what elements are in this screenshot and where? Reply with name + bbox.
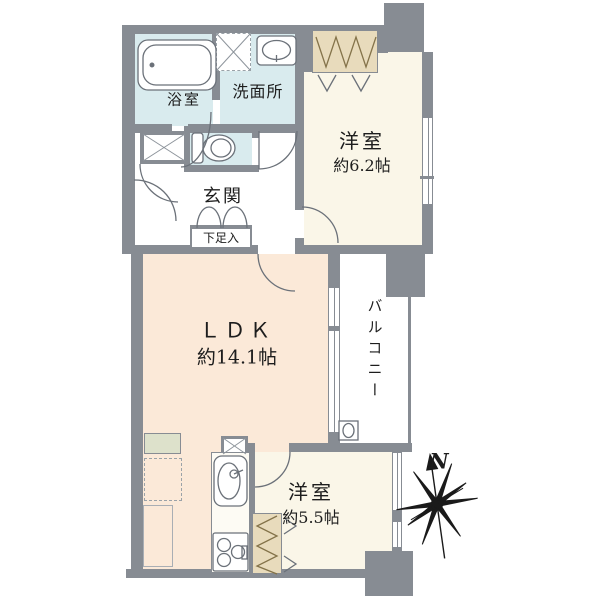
- entry-door-arc: [134, 180, 176, 221]
- window: [422, 118, 433, 204]
- wall: [252, 126, 259, 138]
- floor-plan: 浴室 洗面所 洋室 約6.2帖 玄関 下足入 ＬＤＫ 約14.1帖 バルコニー …: [0, 0, 600, 600]
- balcony-railing: [408, 297, 411, 446]
- bedroom-north-area: 約6.2帖: [333, 158, 390, 174]
- bedroom-south-label: 洋室: [288, 482, 334, 502]
- compass-north-label: N: [429, 451, 448, 472]
- window: [392, 453, 402, 510]
- wall: [295, 25, 312, 72]
- wall: [328, 245, 340, 290]
- toilet-floor: [190, 131, 252, 167]
- window-balcony-doors: [328, 288, 340, 432]
- wall: [422, 202, 433, 245]
- kitchen-counter: [211, 452, 250, 573]
- kitchen-side-counter: [144, 433, 181, 454]
- window-mullion: [420, 176, 434, 179]
- entrance-label: 玄関: [203, 188, 243, 206]
- ldk-area: 約14.1帖: [197, 349, 277, 368]
- closet-bedroom-north: [312, 30, 378, 73]
- bedroom-north-label: 洋室: [339, 131, 385, 151]
- wall-balcony-block: [386, 252, 425, 297]
- wall: [188, 124, 303, 133]
- counter-low: [143, 505, 173, 567]
- ldk-label: ＬＤＫ: [200, 321, 275, 342]
- closet-bedroom-south: [252, 513, 282, 574]
- meter-box: [140, 131, 188, 164]
- refrigerator-space: [144, 458, 182, 501]
- shoe-cabinet-label: 下足入: [203, 232, 239, 244]
- washer-pan: [216, 33, 251, 71]
- bathroom-floor: [132, 34, 213, 126]
- wall: [295, 238, 304, 254]
- toilet-door-arc: [259, 131, 297, 169]
- washroom-label: 洗面所: [232, 84, 283, 100]
- wall: [295, 72, 304, 210]
- bedroom-south-area: 約5.5帖: [282, 510, 339, 526]
- wall: [122, 25, 135, 254]
- window-mullion: [328, 326, 340, 331]
- hall-door-arc: [140, 164, 178, 202]
- balcony-label: バルコニー: [367, 298, 382, 403]
- wall: [422, 52, 433, 120]
- wall-column-block: [384, 3, 424, 52]
- wall-corner-block: [365, 551, 413, 596]
- bathroom-label: 浴室: [167, 93, 201, 108]
- wall: [131, 254, 143, 578]
- wall: [184, 165, 259, 172]
- window: [392, 522, 402, 547]
